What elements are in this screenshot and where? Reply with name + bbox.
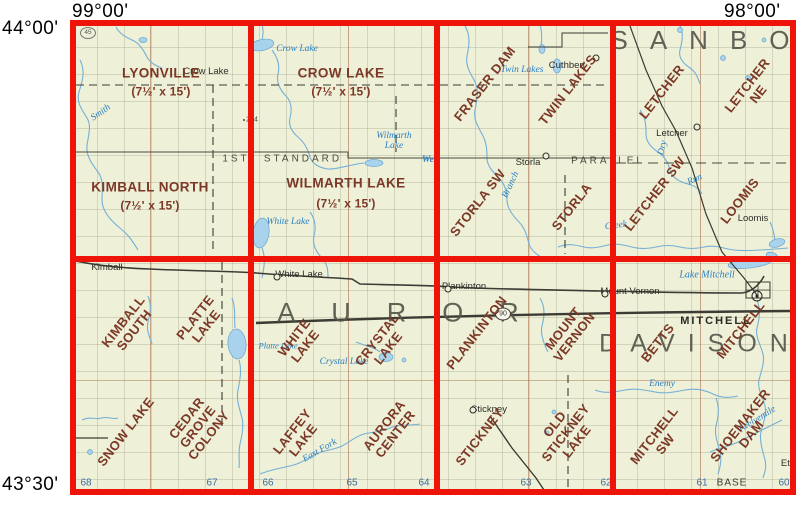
range-number-66: 66 [262, 479, 273, 490]
base-line-label: BASE [717, 479, 748, 490]
coordinate-left-top: 44°00' [2, 18, 59, 40]
quad-label-crow-lake: CROW LAKE [298, 67, 385, 82]
quad-scale-crow-lake: (7½' x 15') [311, 86, 370, 99]
quad-scale-kimball-north: (7½' x 15') [120, 200, 179, 213]
town-marker-white-lake [274, 274, 281, 281]
range-number-67: 67 [206, 479, 217, 490]
quad-scale-lyonville: (7½' x 15') [131, 86, 190, 99]
range-number-60: 60 [778, 479, 789, 490]
range-number-63: 63 [520, 479, 531, 490]
quadrangle-index-map: SANBO AUROR DAVISON 1ST STANDARD PARALLE… [0, 0, 800, 511]
spot-elevation-dot [243, 119, 245, 121]
parallel-label-1st: 1ST [222, 155, 249, 166]
town-marker-mount-vernon [602, 291, 609, 298]
quad-scale-wilmarth-lake: (7½' x 15') [316, 198, 375, 211]
range-number-65: 65 [346, 479, 357, 490]
town-marker-letcher [694, 124, 701, 131]
town-marker-stickney [470, 407, 477, 414]
quad-label-kimball-north: KIMBALL NORTH [91, 181, 208, 196]
quad-label-wilmarth-lake: WILMARTH LAKE [286, 177, 405, 192]
water-label-lake-mitchell: Lake Mitchell [679, 271, 734, 282]
town-label-kimball: Kimball [91, 263, 122, 273]
town-label-storla: Storla [516, 158, 541, 168]
water-label-enemy: Enemy [649, 379, 675, 389]
range-number-61: 61 [696, 479, 707, 490]
county-label-sanborn: SANBO [610, 26, 800, 54]
range-number-68: 68 [80, 479, 91, 490]
town-label-white-lake: White Lake [275, 270, 323, 280]
parallel-label-standard: STANDARD [264, 155, 342, 166]
county-label-davison: DAVISON [599, 331, 800, 358]
town-label-letcher: Letcher [656, 129, 688, 139]
route-45-oval-icon: 45 [80, 27, 96, 39]
county-label-aurora: AUROR [277, 298, 555, 327]
town-label-loomis: Loomis [738, 214, 769, 224]
town-marker-plankinton [445, 286, 452, 293]
water-label-white-lake: White Lake [266, 217, 309, 227]
parallel-label-parallel: PARALLEL [571, 157, 645, 168]
coordinate-top-right: 98°00' [724, 1, 781, 23]
water-label-crow-lake: Crow Lake [276, 44, 318, 54]
coordinate-top-left: 99°00' [72, 1, 129, 23]
town-marker-storla [543, 153, 550, 160]
coordinate-left-bottom: 43°30' [2, 474, 59, 496]
range-number-64: 64 [418, 479, 429, 490]
quad-label-lyonville: LYONVILLE [122, 67, 200, 82]
water-label-wilmarth-lake: Wilmarth Lake [376, 131, 411, 152]
index-grid-line-horizontal [70, 256, 796, 262]
town-label-ethan-partial: Eth [781, 459, 795, 469]
